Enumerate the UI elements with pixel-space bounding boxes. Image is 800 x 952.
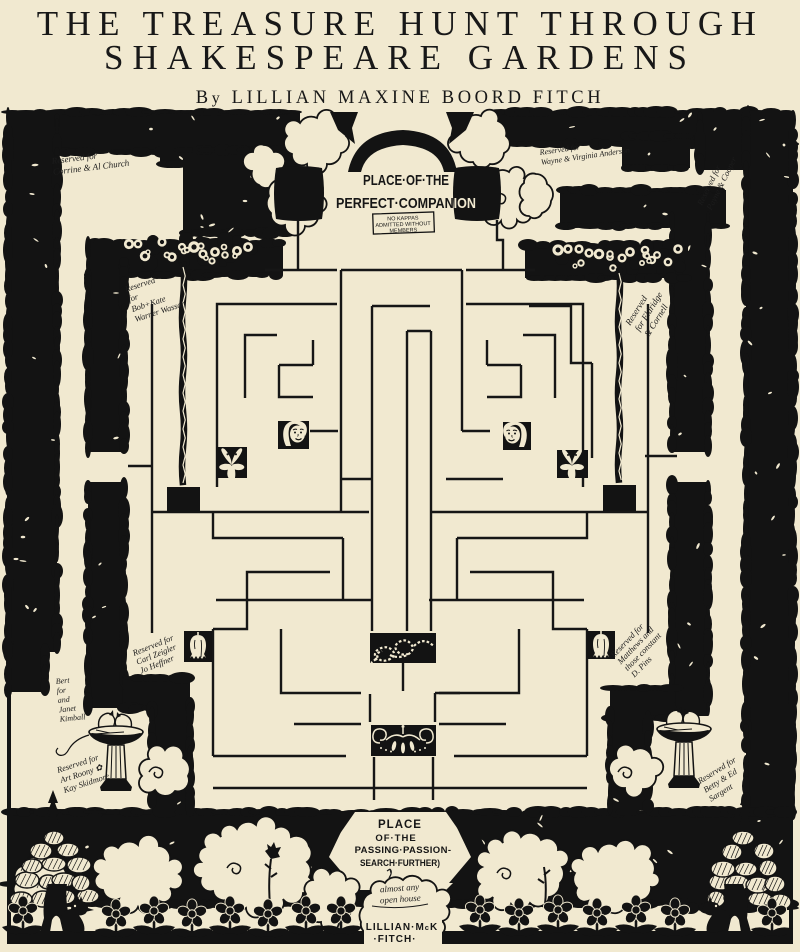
svg-text:MEMBERS: MEMBERS [389,227,417,234]
svg-text:SHAKESPEARE GARDENS: SHAKESPEARE GARDENS [104,38,696,77]
svg-text:SEARCH·FURTHER): SEARCH·FURTHER) [360,858,440,869]
svg-text:PLACE·OF·THE: PLACE·OF·THE [363,172,449,189]
svg-text:PLACE: PLACE [378,819,422,831]
svg-text:LILLIAN·McK: LILLIAN·McK [366,922,438,933]
svg-text:By LILLIAN MAXINE BOORD FITCH: By LILLIAN MAXINE BOORD FITCH [196,88,604,108]
svg-text:OF·THE: OF·THE [375,833,416,844]
svg-text:Bert: Bert [55,676,70,686]
svg-text:·FITCH·: ·FITCH· [373,934,416,945]
svg-text:PASSING·PASSION-: PASSING·PASSION- [355,845,452,856]
